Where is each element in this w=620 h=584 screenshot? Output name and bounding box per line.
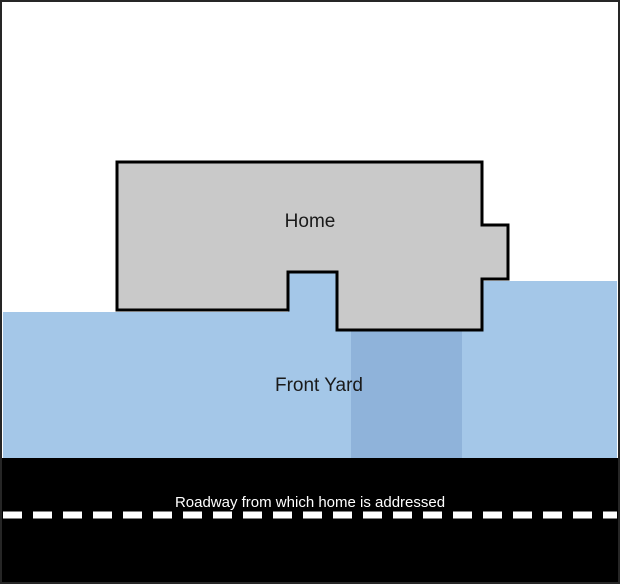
site-plan-diagram: Home Front Yard Roadway from which home … (0, 0, 620, 584)
driveway-shape (351, 330, 462, 459)
roadway-band (2, 458, 618, 582)
home-label: Home (285, 211, 336, 232)
front-yard-label: Front Yard (275, 375, 363, 396)
roadway-label: Roadway from which home is addressed (175, 494, 445, 511)
site-plan-canvas: Home Front Yard Roadway from which home … (0, 0, 620, 584)
